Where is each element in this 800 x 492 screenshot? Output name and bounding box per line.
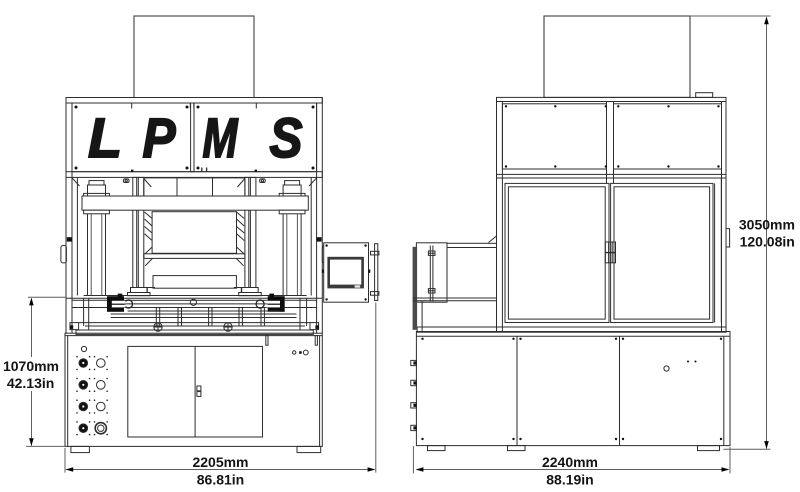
svg-text:86.81in: 86.81in xyxy=(197,472,244,488)
svg-text:88.19in: 88.19in xyxy=(546,472,593,488)
svg-text:M: M xyxy=(203,107,239,169)
svg-text:42.13in: 42.13in xyxy=(7,375,54,391)
svg-text:2205mm: 2205mm xyxy=(192,454,248,470)
svg-text:S: S xyxy=(270,107,303,169)
svg-text:L: L xyxy=(88,107,122,169)
svg-text:1070mm: 1070mm xyxy=(3,358,59,374)
svg-text:P: P xyxy=(143,107,177,169)
svg-text:2240mm: 2240mm xyxy=(542,454,598,470)
svg-text:3050mm: 3050mm xyxy=(739,216,795,232)
svg-text:120.08in: 120.08in xyxy=(740,234,795,250)
